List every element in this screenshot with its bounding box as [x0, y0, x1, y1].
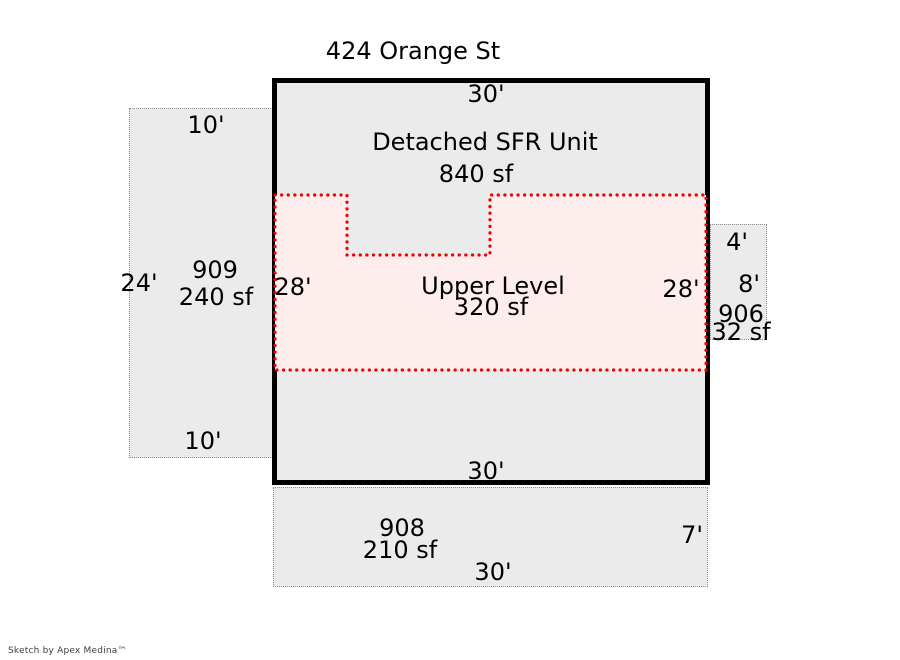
unit-908-area: 210 sf: [363, 538, 437, 562]
sketch-credit: Sketch by Apex Medina™: [8, 646, 127, 656]
unit-909-id: 909: [192, 258, 238, 282]
upper-level-area: 320 sf: [454, 295, 528, 319]
unit-908-bottom-dimension: 30': [474, 560, 511, 584]
unit-909-left-dimension: 24': [120, 271, 157, 295]
page-title: 424 Orange St: [326, 39, 500, 63]
building-area: 840 sf: [439, 162, 513, 186]
unit-906-area: 32 sf: [711, 320, 770, 344]
building-name: Detached SFR Unit: [372, 130, 598, 154]
unit-909-bottom-dimension: 10': [184, 429, 221, 453]
upper-level-left-dimension: 28': [274, 275, 311, 299]
upper-level-right-dimension: 28': [662, 277, 699, 301]
building-top-dimension: 30': [467, 82, 504, 106]
unit-906-right-dimension: 8': [738, 272, 760, 296]
unit-909-area: 240 sf: [179, 285, 253, 309]
building-bottom-dimension: 30': [467, 459, 504, 483]
property-sketch: 424 Orange St 30' Detached SFR Unit 840 …: [0, 0, 900, 660]
unit-908-right-dimension: 7': [681, 523, 703, 547]
unit-909-top-dimension: 10': [187, 113, 224, 137]
unit-906-top-dimension: 4': [726, 230, 748, 254]
